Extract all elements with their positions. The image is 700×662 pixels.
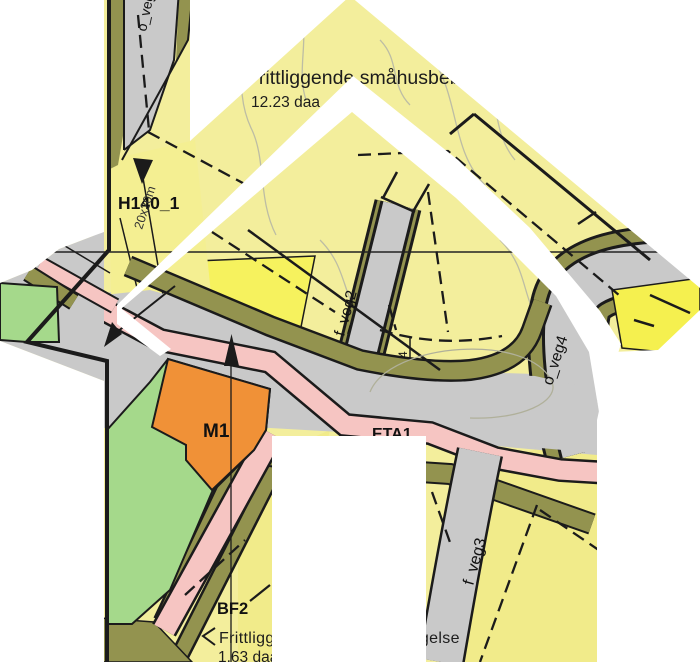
svg-text:1.63 daa: 1.63 daa (218, 649, 279, 662)
svg-text:4: 4 (396, 351, 410, 358)
svg-text:BF2: BF2 (217, 600, 248, 618)
svg-text:12.23 daa: 12.23 daa (251, 94, 320, 111)
svg-text:M1: M1 (203, 421, 230, 442)
